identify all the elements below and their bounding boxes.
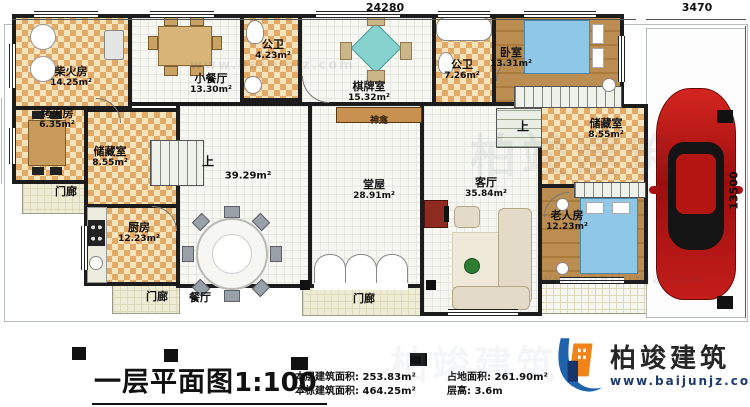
company-url: www.baijunjz.com <box>610 374 750 388</box>
stairs-right <box>574 182 646 198</box>
window-elderly-south <box>560 277 624 284</box>
tv-screen <box>444 206 449 222</box>
pillow <box>586 202 604 214</box>
carport-column <box>717 110 733 123</box>
dining-chair <box>224 290 240 302</box>
label-bath-1: 公卫 4.23m² <box>255 39 291 61</box>
shrine-label: 神龛 <box>370 116 388 126</box>
pillow <box>592 48 604 68</box>
floor-plan-canvas: 24280 3470 13500 神龛 <box>0 0 750 407</box>
label-porch-south-center: 门廊 <box>353 290 375 306</box>
eave-column <box>410 353 427 366</box>
label-dining-area: 39.29m² <box>225 171 271 182</box>
label-dining-name: 餐厅 <box>189 289 211 305</box>
pillow <box>612 202 630 214</box>
window-bath2-north <box>438 11 490 18</box>
plan-title-text: 一层平面图 <box>94 367 234 398</box>
label-small-dining: 小餐厅 13.30m² <box>190 73 232 95</box>
deck-south-elderly <box>538 280 648 314</box>
company-logo: 柏竣建筑 www.baijunjz.com <box>552 334 750 398</box>
dining-chair <box>182 246 194 262</box>
label-main-hall: 堂屋 28.91m² <box>353 179 395 201</box>
kitchen-sink <box>89 256 103 270</box>
label-firewood: 柴火房 14.25m² <box>50 66 92 88</box>
label-porch-west: 门廊 <box>55 183 77 199</box>
label-elderly: 老人房 12.23m² <box>546 210 588 232</box>
eave-column <box>72 347 86 360</box>
black-chair <box>32 167 44 175</box>
dim-line-top <box>12 19 636 20</box>
window-firewood-west <box>9 44 16 88</box>
chair <box>212 36 222 50</box>
label-chess: 棋牌室 15.32m² <box>348 81 390 103</box>
dining-chair <box>270 246 282 262</box>
entry-door-arc-3 <box>376 254 408 283</box>
window-smalldining-north <box>150 11 214 18</box>
pillow <box>592 24 604 44</box>
basin-1 <box>244 76 262 94</box>
dim-top: 24280 <box>340 1 430 14</box>
entry-door-arc-2 <box>345 254 377 283</box>
chair <box>164 66 178 76</box>
carport-column <box>717 296 733 309</box>
shrine: 神龛 <box>336 107 422 123</box>
window-heating-west <box>9 128 16 164</box>
chess-chair <box>400 42 412 60</box>
bed-bedroom <box>524 20 590 74</box>
porch-column <box>300 280 310 290</box>
car-mirror <box>649 186 658 194</box>
stats-right: 占地面积: 261.90m² 层高: 3.6m <box>447 371 548 399</box>
company-logo-text: 柏竣建筑 www.baijunjz.com <box>610 344 750 388</box>
firewood-sink <box>104 30 124 60</box>
label-stairs-up-right: 上 <box>517 118 529 135</box>
company-name: 柏竣建筑 <box>610 344 750 374</box>
nightstand <box>602 78 616 92</box>
black-chair <box>50 167 62 175</box>
dim-line-top-right <box>646 19 746 20</box>
window-kitchen-west <box>81 226 88 270</box>
label-heating: 烤火房 6.35m² <box>39 108 75 130</box>
stat-building-area: 本栋建筑面积: 464.25m² <box>295 385 416 399</box>
stove <box>88 220 105 246</box>
sofa-bottom <box>452 286 530 310</box>
stat-land-area: 占地面积: 261.90m² <box>447 371 548 385</box>
label-storage-right: 储藏室 8.55m² <box>588 118 624 140</box>
chess-chair <box>340 42 352 60</box>
roof-eave-left-line <box>1 98 2 184</box>
stairs-left <box>150 140 204 186</box>
window-firewood-north <box>34 11 98 18</box>
small-dining-table <box>158 26 212 66</box>
dining-chair <box>224 206 240 218</box>
label-bedroom: 卧室 13.31m² <box>490 47 532 69</box>
company-logo-icon <box>552 334 604 398</box>
armchair <box>454 206 480 228</box>
bathtub <box>436 17 492 41</box>
label-stairs-up-left: 上 <box>202 153 214 170</box>
label-kitchen: 厨房 12.23m² <box>118 222 160 244</box>
nightstand <box>556 262 569 275</box>
window-bedroom-north <box>524 11 596 18</box>
dim-top-right: 3470 <box>671 1 723 14</box>
label-living: 客厅 35.84m² <box>465 177 507 199</box>
dim-right: 13500 <box>728 161 741 221</box>
stat-floor-height: 层高: 3.6m <box>447 385 548 399</box>
plant <box>464 258 480 274</box>
window-living-south <box>448 309 518 316</box>
label-bath-2: 公卫 7.26m² <box>444 59 480 81</box>
label-porch-south-left: 门廊 <box>146 288 168 304</box>
dining-table-inner <box>212 234 252 274</box>
entry-door-arc-1 <box>314 254 346 283</box>
vat-1 <box>30 24 56 50</box>
label-storage-left: 储藏室 8.55m² <box>92 146 128 168</box>
stats-left: 本层建筑面积: 253.83m² 本栋建筑面积: 464.25m² <box>295 371 416 399</box>
car-roof <box>676 154 716 214</box>
window-bedroom-east <box>618 36 625 82</box>
chair <box>148 36 158 50</box>
stat-floor-area: 本层建筑面积: 253.83m² <box>295 371 416 385</box>
room-firewood <box>12 14 132 110</box>
plan-title: 一层平面图1:100 <box>92 360 327 405</box>
dim-line-right <box>745 26 746 318</box>
porch-column <box>426 280 436 290</box>
